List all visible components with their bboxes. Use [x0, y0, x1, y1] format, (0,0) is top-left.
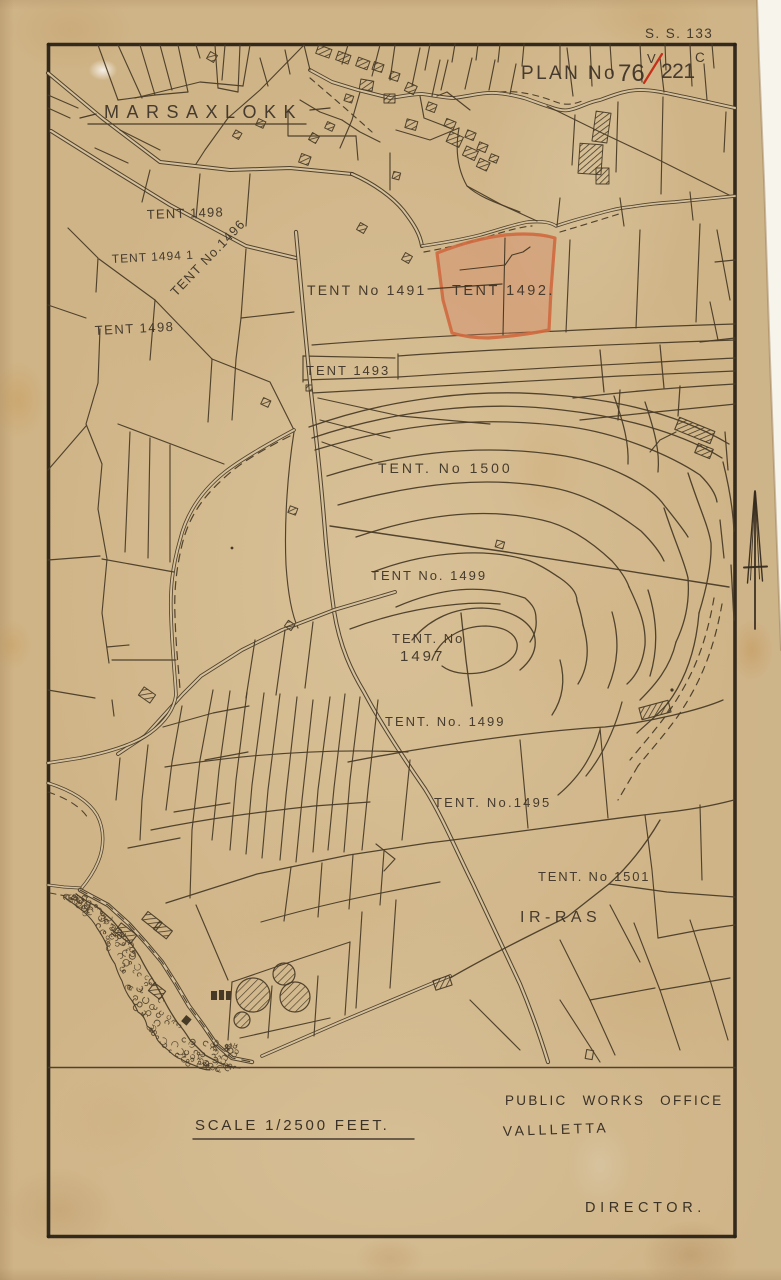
- svg-text:TENT. No: TENT. No: [392, 631, 464, 646]
- svg-text:PUBLIC WORKS OFFICE: PUBLIC WORKS OFFICE: [505, 1093, 723, 1108]
- svg-text:76: 76: [618, 60, 645, 87]
- svg-text:TENT. No 1501: TENT. No 1501: [538, 869, 650, 884]
- svg-text:TENT 1498: TENT 1498: [94, 319, 174, 338]
- svg-text:TENT 1494 1: TENT 1494 1: [111, 248, 194, 266]
- svg-text:S. S. 133: S. S. 133: [645, 26, 713, 41]
- svg-text:VALLLETTA: VALLLETTA: [503, 1119, 610, 1139]
- svg-text:IR-RAS: IR-RAS: [520, 909, 601, 926]
- svg-text:TENT. No. 1499: TENT. No. 1499: [385, 714, 506, 729]
- svg-text:1497: 1497: [400, 648, 445, 665]
- svg-text:TENT. No 1500: TENT. No 1500: [378, 460, 513, 476]
- svg-text:MARSAXLOKK: MARSAXLOKK: [104, 102, 303, 122]
- svg-text:221: 221: [661, 60, 695, 83]
- svg-text:TENT No 1491: TENT No 1491: [307, 282, 427, 298]
- svg-text:TENT 1492.: TENT 1492.: [452, 283, 555, 299]
- svg-text:C: C: [695, 50, 707, 65]
- svg-text:TENT 1493: TENT 1493: [306, 363, 390, 378]
- svg-text:TENT. No.1495: TENT. No.1495: [434, 795, 551, 810]
- svg-text:TENT No. 1499: TENT No. 1499: [371, 568, 487, 583]
- svg-text:SCALE 1/2500 FEET.: SCALE 1/2500 FEET.: [195, 1117, 390, 1134]
- svg-text:DIRECTOR.: DIRECTOR.: [585, 1200, 706, 1216]
- svg-text:PLAN No: PLAN No: [521, 63, 617, 84]
- svg-text:TENT 1498: TENT 1498: [147, 204, 225, 222]
